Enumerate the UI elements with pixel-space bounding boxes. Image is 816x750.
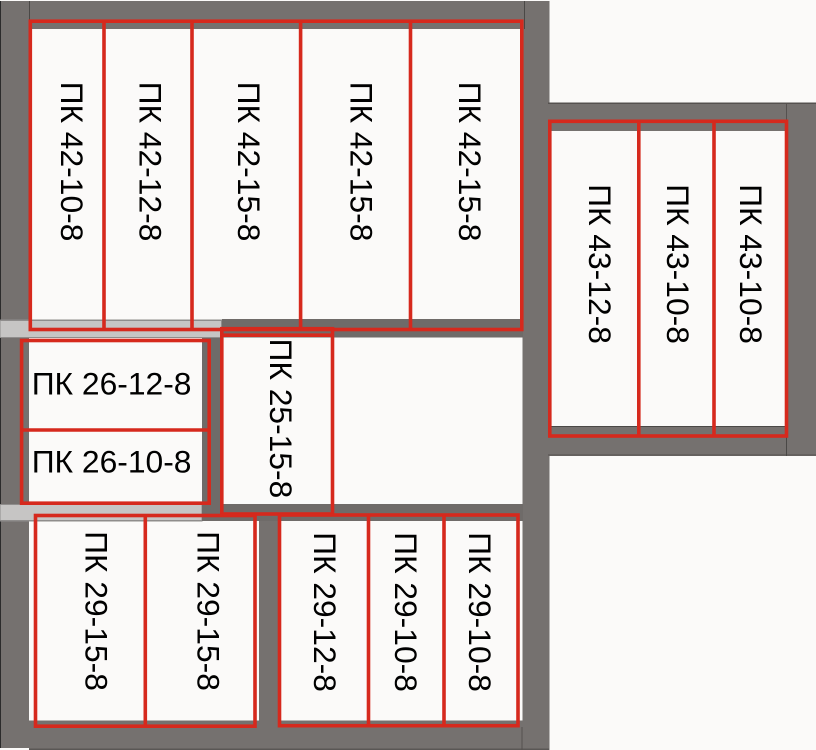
svg-text:ПК 42-15-8: ПК 42-15-8 — [231, 82, 267, 242]
svg-text:ПК 25-15-8: ПК 25-15-8 — [263, 338, 299, 498]
svg-text:ПК 42-12-8: ПК 42-12-8 — [133, 82, 169, 242]
svg-text:ПК 29-15-8: ПК 29-15-8 — [190, 531, 226, 691]
svg-text:ПК 29-10-8: ПК 29-10-8 — [462, 532, 498, 692]
svg-text:ПК 43-10-8: ПК 43-10-8 — [660, 184, 696, 344]
svg-text:ПК 29-10-8: ПК 29-10-8 — [388, 532, 424, 692]
svg-text:ПК 26-12-8: ПК 26-12-8 — [32, 366, 192, 402]
svg-text:ПК 42-15-8: ПК 42-15-8 — [452, 82, 488, 242]
svg-text:ПК 43-10-8: ПК 43-10-8 — [733, 184, 769, 344]
svg-text:ПК 42-10-8: ПК 42-10-8 — [54, 82, 90, 242]
svg-text:ПК 26-10-8: ПК 26-10-8 — [32, 444, 192, 480]
svg-text:ПК 29-12-8: ПК 29-12-8 — [307, 532, 343, 692]
svg-text:ПК 42-15-8: ПК 42-15-8 — [344, 82, 380, 242]
svg-text:ПК 29-15-8: ПК 29-15-8 — [78, 531, 114, 691]
svg-text:ПК 43-12-8: ПК 43-12-8 — [582, 184, 618, 344]
